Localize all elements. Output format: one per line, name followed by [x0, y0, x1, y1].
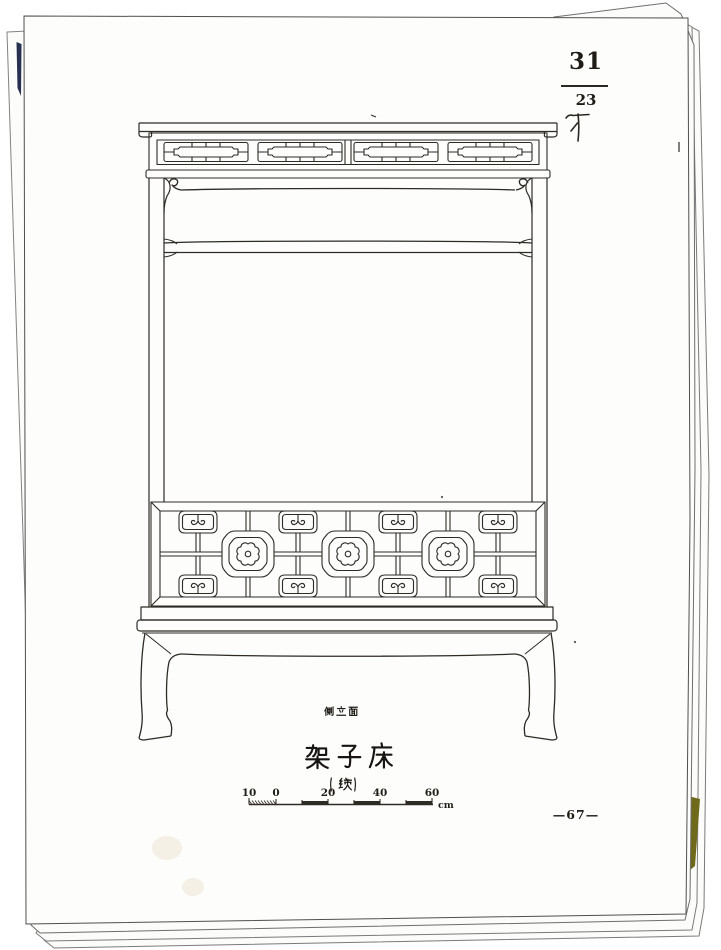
view-label-glyphs — [325, 707, 358, 716]
artwork-layer: 10 0 20 40 60 cm — [0, 0, 721, 950]
scale-label-10: 10 — [242, 787, 257, 799]
fraction-rule — [561, 85, 608, 87]
bed-legs-and-apron — [139, 633, 557, 740]
scale-bar: 10 0 20 40 60 cm — [242, 787, 454, 811]
bed-platform — [137, 607, 557, 633]
figure-number: 31 — [560, 48, 612, 75]
canopy-scroll-apron — [169, 179, 528, 190]
canopy-bed-drawing — [137, 115, 576, 740]
bed-title-glyphs — [306, 743, 392, 768]
railing-lattice-panel — [151, 502, 545, 606]
canopy-roof — [139, 115, 557, 137]
photo-of-book-page: { "page": { "figure_number": "31", "plat… — [0, 0, 721, 950]
scale-label-40: 40 — [373, 787, 388, 799]
stretcher-rail — [164, 239, 532, 257]
scale-label-20: 20 — [321, 787, 336, 799]
canopy-lattice-frieze — [146, 133, 550, 178]
handwritten-mark-icon — [566, 114, 589, 141]
plate-number: 23 — [560, 91, 612, 109]
scale-unit-label: cm — [438, 800, 454, 811]
scale-bar-blocks — [302, 801, 432, 805]
scale-label-0: 0 — [272, 787, 279, 799]
page-number: —67— — [544, 807, 608, 822]
scale-label-60: 60 — [425, 787, 440, 799]
